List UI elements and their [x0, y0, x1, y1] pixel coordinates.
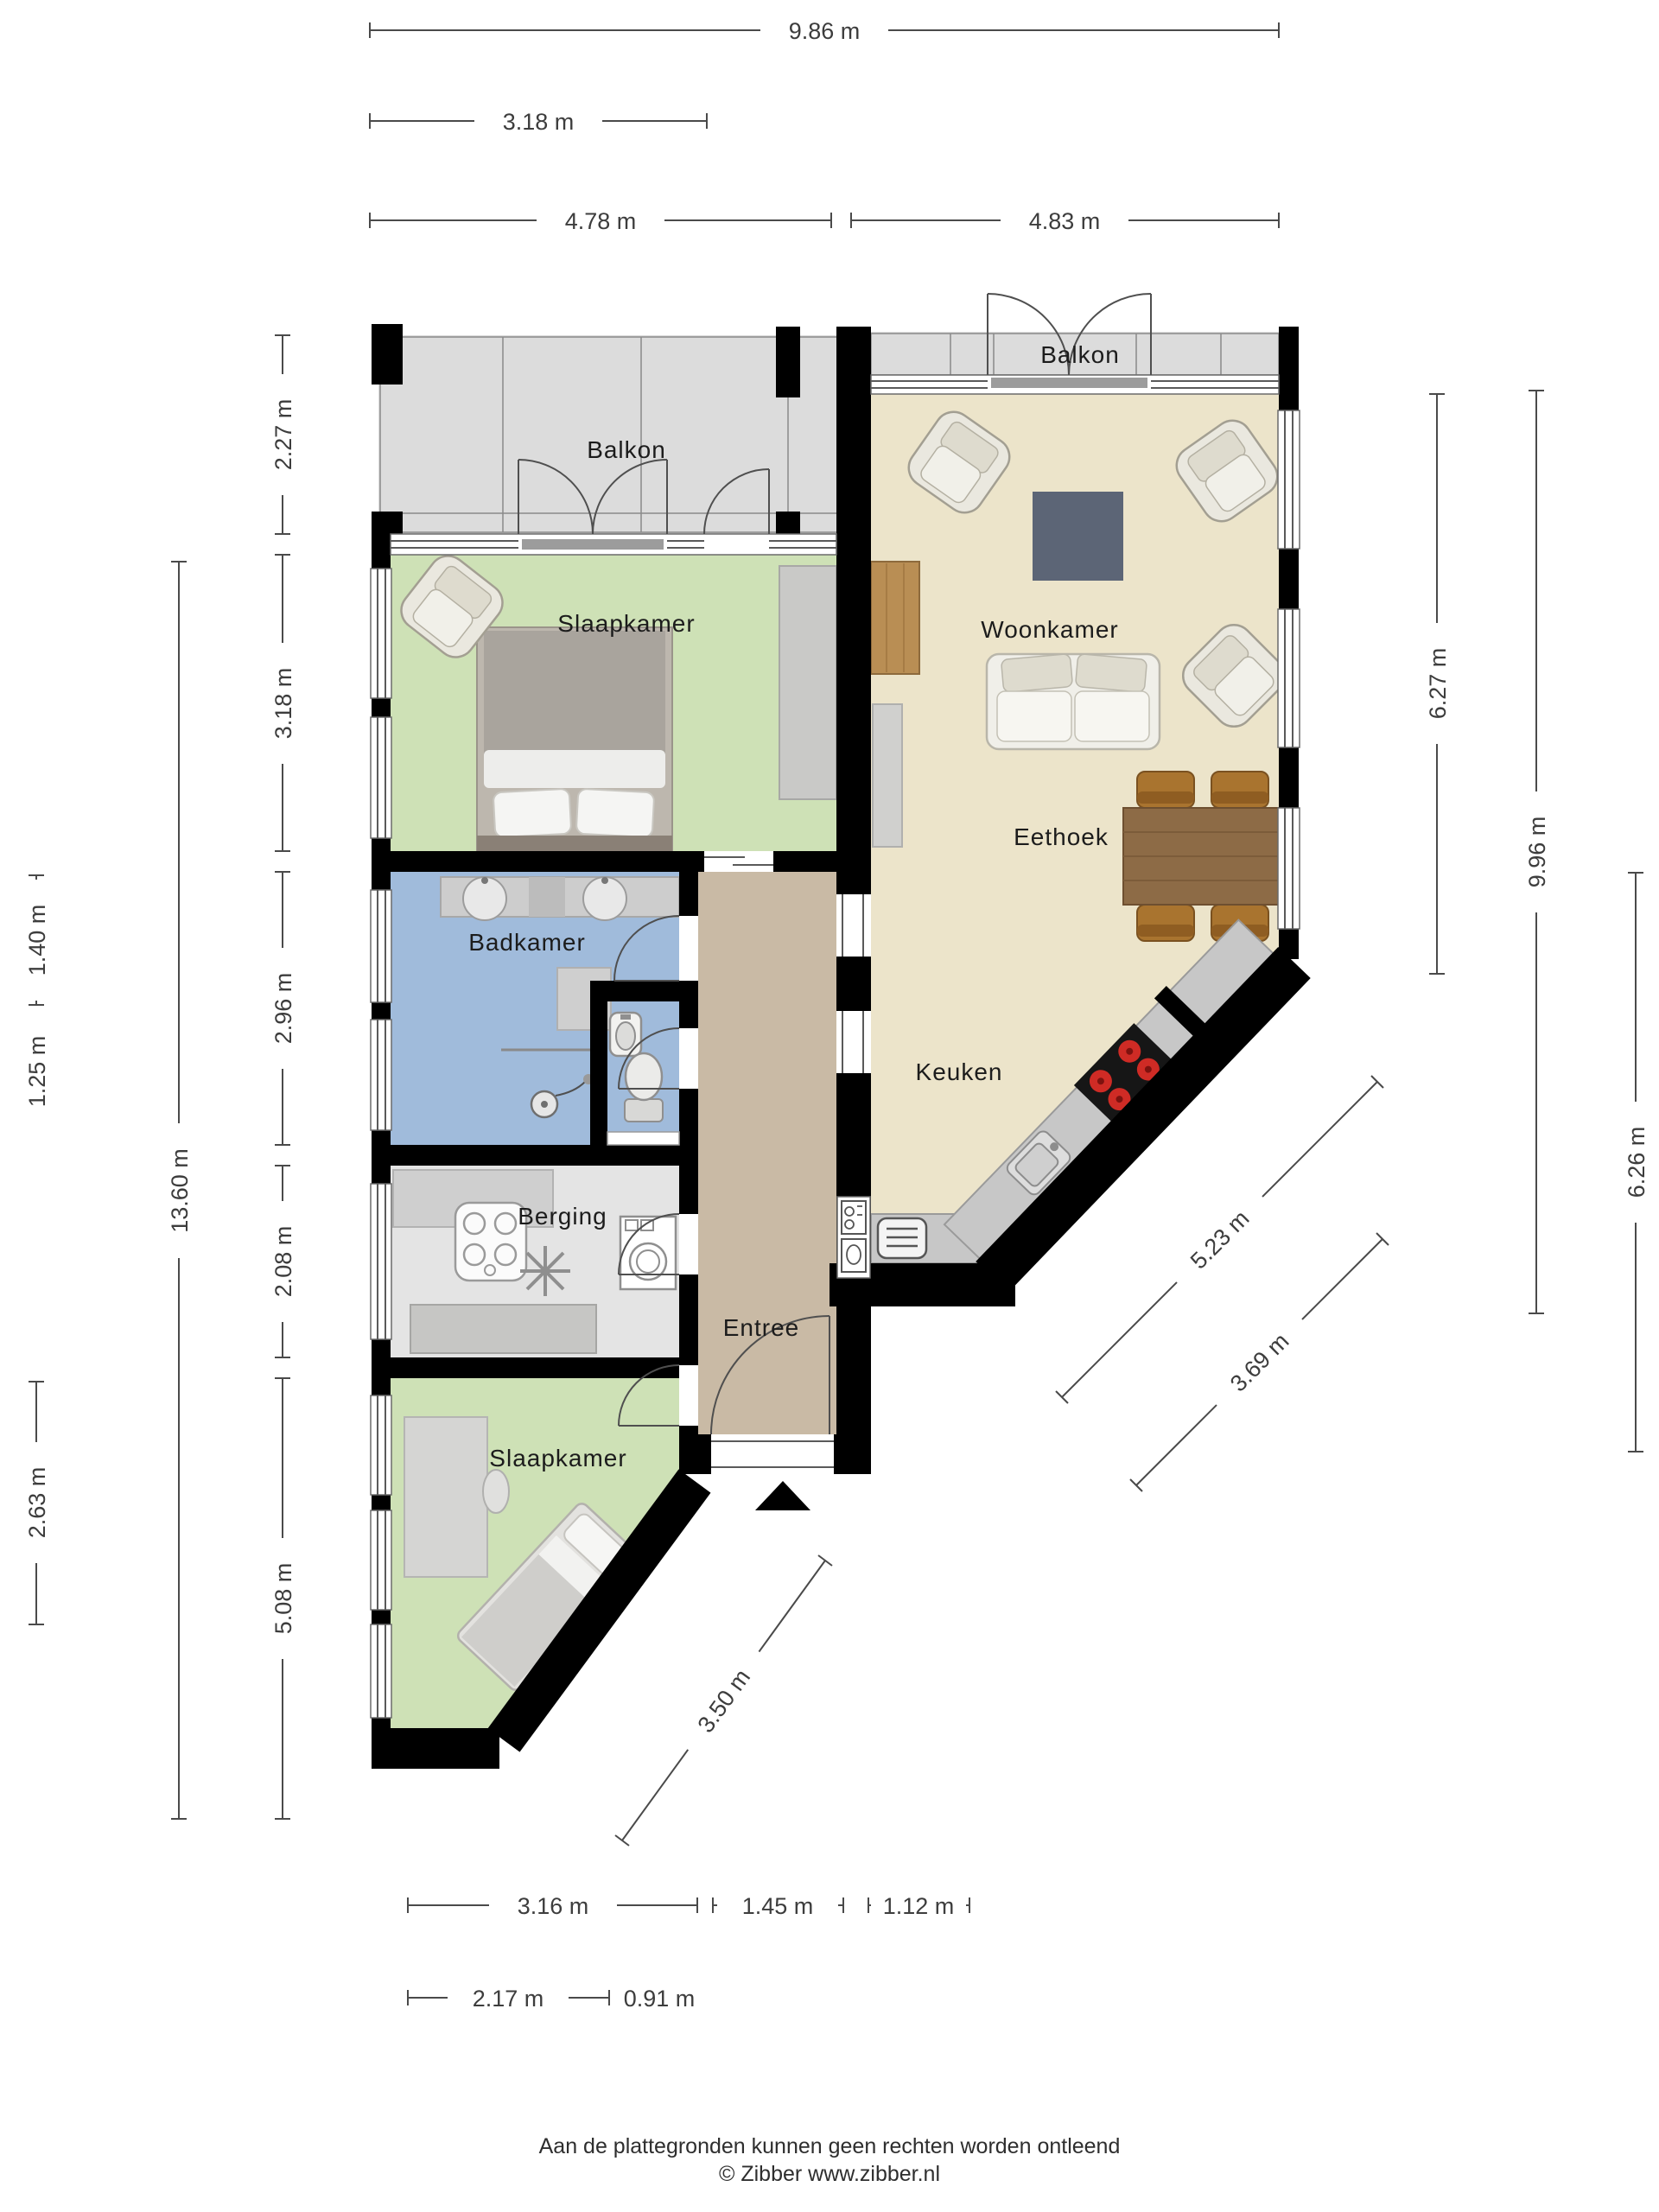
window: [371, 717, 391, 838]
meter-cupboard: [837, 1197, 870, 1278]
room-label-woonkamer: Woonkamer: [981, 616, 1118, 643]
ventilation-fan-icon: [520, 1246, 570, 1296]
boiler-icon: [455, 1203, 526, 1281]
room-label-slaapkamer-bottom: Slaapkamer: [489, 1445, 626, 1471]
window: [1278, 609, 1300, 747]
wall-bedroom-top-bottom: [372, 851, 871, 872]
dim-label: 13.60 m: [167, 1148, 193, 1233]
dim-label: 6.26 m: [1624, 1127, 1649, 1198]
entrance-marker-icon: [755, 1481, 810, 1510]
room-label-slaapkamer-top: Slaapkamer: [557, 610, 695, 637]
room-label-balkon-right: Balkon: [1040, 341, 1120, 368]
dim-label: 9.96 m: [1524, 817, 1550, 888]
door-threshold: [991, 378, 1147, 388]
dim-top-total: 9.86 m: [370, 15, 1279, 46]
rug: [1033, 492, 1123, 581]
interior-opening: [836, 894, 871, 957]
dim-label: 9.86 m: [789, 18, 861, 44]
dim-right-total: 9.96 m: [1522, 391, 1551, 1313]
room-label-berging: Berging: [518, 1203, 607, 1230]
dim-bottom-detail-left: 2.17 m: [408, 1982, 609, 2013]
dim-label: 3.18 m: [503, 109, 575, 135]
sideboard: [873, 704, 902, 847]
toilet-icon: [625, 1053, 663, 1122]
dim-label: 3.18 m: [270, 668, 296, 740]
dim-diagonal-bedroom: 3.50 m: [615, 1555, 832, 1846]
cabinet-wood: [871, 562, 919, 674]
dim-label: 3.69 m: [1225, 1328, 1294, 1397]
wall-balkon-right-corner: [1279, 327, 1299, 394]
window: [371, 1510, 391, 1610]
storage-wardrobe: [410, 1305, 596, 1353]
dim-bottom-hall: 1.45 m: [713, 1890, 843, 1921]
window: [1278, 808, 1300, 929]
entree-floor: [698, 872, 836, 1434]
dim-bottom-bedroom: 3.16 m: [408, 1890, 697, 1921]
room-label-balkon-left: Balkon: [587, 436, 666, 463]
dim-right-hall-kitchen: 6.26 m: [1621, 873, 1650, 1452]
dim-label: 4.83 m: [1029, 208, 1101, 234]
window: [371, 890, 391, 1002]
window: [1278, 410, 1300, 549]
dim-left-total: 13.60 m: [164, 562, 194, 1819]
door-threshold: [522, 539, 664, 550]
dim-top-right-wing: 4.83 m: [851, 205, 1279, 236]
dim-left-bathroom: 2.96 m: [268, 872, 297, 1145]
footer-disclaimer: Aan de plattegronden kunnen geen rechten…: [539, 2134, 1121, 2158]
window-band-living-top: [871, 375, 1279, 394]
footer-copyright: © Zibber www.zibber.nl: [719, 2162, 940, 2186]
room-label-eethoek: Eethoek: [1014, 823, 1109, 850]
dim-label: 2.17 m: [473, 1986, 544, 2012]
dim-label: 5.08 m: [270, 1563, 296, 1635]
dim-label: 2.63 m: [24, 1467, 50, 1539]
washing-machine-icon: [620, 1217, 676, 1289]
wall-bottom-left: [372, 1728, 499, 1769]
room-label-keuken: Keuken: [916, 1058, 1003, 1085]
dim-left-bedroom-bottom-wall: 2.63 m: [22, 1382, 51, 1624]
dim-label: 5.23 m: [1185, 1205, 1255, 1274]
dim-label: 1.45 m: [742, 1893, 814, 1919]
dim-label: 2.27 m: [270, 399, 296, 471]
sliding-door: [704, 851, 773, 872]
dim-label: 1.25 m: [24, 1036, 50, 1108]
dim-top-left-wing: 4.78 m: [370, 205, 831, 236]
wall-balkon-corner-tl: [372, 324, 403, 385]
dim-label: 2.96 m: [270, 973, 296, 1045]
window: [371, 1020, 391, 1130]
dim-right-living: 6.27 m: [1422, 394, 1452, 974]
window: [371, 569, 391, 698]
room-label-entree: Entree: [723, 1314, 800, 1341]
wardrobe-bedroom-top: [779, 566, 836, 799]
dim-label: 1.40 m: [24, 905, 50, 976]
dim-bottom-detail-right: 0.91 m: [614, 1982, 706, 2013]
bathroom-vanity: [441, 877, 679, 920]
wall-storage-bottom: [372, 1357, 698, 1378]
interior-opening: [836, 1011, 871, 1073]
dim-label: 1.12 m: [883, 1893, 955, 1919]
desk-chair: [483, 1470, 509, 1513]
window-band-bedroom-top: [391, 534, 836, 555]
dim-left-detail-lower: 1.25 m: [22, 1011, 51, 1132]
wall-wc-left: [590, 981, 607, 1145]
dim-left-storage: 2.08 m: [268, 1166, 297, 1357]
dim-top-balcony-left: 3.18 m: [370, 105, 707, 137]
dim-label: 2.08 m: [270, 1226, 296, 1298]
footer: Aan de plattegronden kunnen geen rechten…: [539, 2134, 1121, 2186]
dim-left-detail-upper: 1.40 m: [22, 875, 51, 1005]
window: [371, 1624, 391, 1718]
wall-balkon-corner-tr: [776, 327, 800, 397]
dim-left-bedroom-bottom: 5.08 m: [268, 1378, 297, 1819]
floor-plan-canvas: Balkon Slaapkamer Woonkamer Eethoek Badk…: [0, 0, 1659, 2212]
sofa: [987, 654, 1160, 749]
dim-label: 4.78 m: [565, 208, 637, 234]
window: [371, 1184, 391, 1339]
window: [371, 1395, 391, 1495]
wall-bathroom-bottom: [372, 1145, 698, 1166]
room-label-badkamer: Badkamer: [468, 929, 586, 956]
dim-label: 3.16 m: [518, 1893, 589, 1919]
double-bed: [477, 627, 672, 854]
dim-label: 6.27 m: [1425, 648, 1451, 720]
balkon-left-floor: [378, 335, 841, 534]
fuse-panel-icon: [842, 1239, 866, 1272]
dim-label: 0.91 m: [624, 1986, 696, 2012]
wc-ledge: [607, 1132, 679, 1145]
dim-left-bedroom-top: 3.18 m: [268, 555, 297, 851]
wc-sink-icon: [610, 1013, 641, 1056]
dim-left-balcony: 2.27 m: [268, 335, 297, 534]
dim-bottom-kitchen: 1.12 m: [868, 1890, 969, 1921]
microwave-icon: [878, 1218, 926, 1258]
fuse-panel-icon: [842, 1201, 866, 1234]
